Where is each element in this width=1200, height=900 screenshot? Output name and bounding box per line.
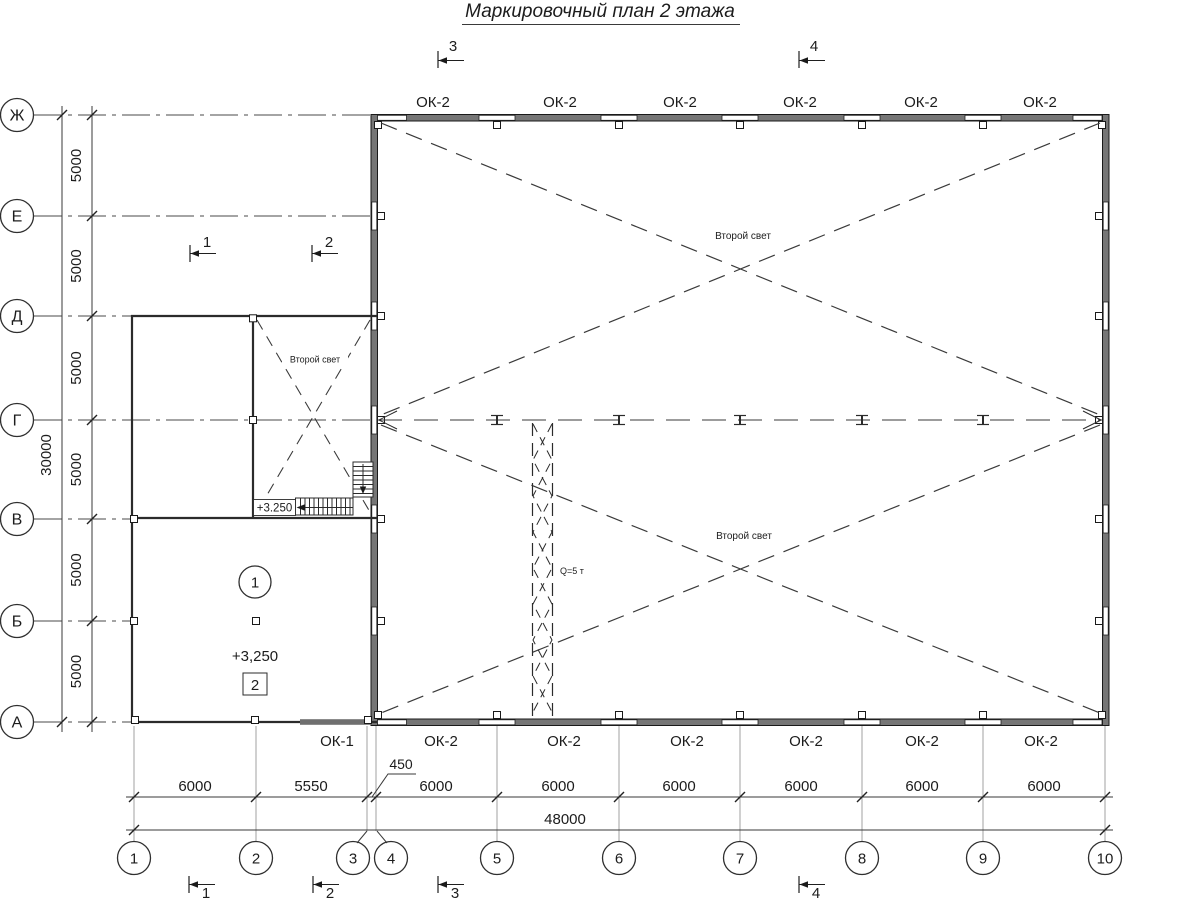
dim-text: 6000 bbox=[905, 778, 938, 795]
crane-capacity-label: Q=5 т bbox=[560, 566, 584, 576]
second-light-label: Второй свет bbox=[716, 531, 772, 542]
bottom-dimension-lines: 6000 5550 450 6000 6000 6000 6000 6000 6… bbox=[126, 756, 1113, 835]
left-dimension-lines: 5000 5000 5000 5000 5000 5000 30000 bbox=[38, 106, 97, 732]
axis-label: 8 bbox=[858, 851, 866, 868]
window-label: ОК-2 bbox=[1024, 733, 1058, 750]
axis-label: 3 bbox=[349, 851, 357, 868]
window-label: ОК-2 bbox=[905, 733, 939, 750]
window-label: ОК-1 bbox=[320, 733, 354, 750]
axis-label: 5 bbox=[493, 851, 501, 868]
section-arrow bbox=[314, 881, 323, 887]
section-arrow bbox=[313, 250, 322, 256]
section-number: 4 bbox=[810, 38, 818, 55]
section-marks: 3 4 1 2 1 2 3 4 bbox=[189, 38, 825, 900]
window-label: ОК-2 bbox=[670, 733, 704, 750]
dim-text: 6000 bbox=[419, 778, 452, 795]
dim-text: 5000 bbox=[68, 553, 85, 586]
axis-label: Г bbox=[13, 413, 22, 430]
axis-label: Ж bbox=[10, 108, 25, 125]
dim-total-text: 30000 bbox=[38, 434, 55, 476]
drawing-title: Маркировочный план 2 этажа bbox=[465, 1, 735, 22]
window-labels-bottom: ОК-1 ОК-2 ОК-2 ОК-2 ОК-2 ОК-2 ОК-2 bbox=[320, 733, 1058, 750]
axis-label: Е bbox=[12, 209, 23, 226]
plan-mark: 2 bbox=[251, 677, 259, 694]
void-cross-lower: Второй свет bbox=[381, 425, 1100, 713]
window-label: ОК-2 bbox=[543, 94, 577, 111]
axis-grid-lines bbox=[34, 115, 371, 722]
dim-text: 6000 bbox=[178, 778, 211, 795]
axis-label: В bbox=[12, 512, 23, 529]
second-light-label: Второй свет bbox=[290, 355, 340, 365]
dim-text: 5550 bbox=[294, 778, 327, 795]
dim-text: 6000 bbox=[662, 778, 695, 795]
second-light-label: Второй свет bbox=[715, 231, 771, 242]
window-label: ОК-2 bbox=[424, 733, 458, 750]
dim-text: 6000 bbox=[541, 778, 574, 795]
floor-elevation-label: +3,250 bbox=[232, 648, 278, 665]
stair-elevation-label: +3.250 bbox=[257, 503, 293, 515]
dim-text: 5000 bbox=[68, 149, 85, 182]
window-labels-top: ОК-2 ОК-2 ОК-2 ОК-2 ОК-2 ОК-2 bbox=[416, 94, 1057, 111]
bottom-extension-lines bbox=[134, 726, 1105, 842]
axis-label: 7 bbox=[736, 851, 744, 868]
section-number: 4 bbox=[812, 885, 820, 900]
section-number: 2 bbox=[326, 885, 334, 900]
window-label: ОК-2 bbox=[416, 94, 450, 111]
window-label: ОК-2 bbox=[904, 94, 938, 111]
section-arrow bbox=[800, 881, 809, 887]
axis-label: 2 bbox=[252, 851, 260, 868]
section-number: 1 bbox=[203, 234, 211, 251]
dim-text: 6000 bbox=[1027, 778, 1060, 795]
col-axis-bubbles: 1 2 3 4 5 6 7 8 9 10 bbox=[118, 831, 1122, 875]
section-number: 2 bbox=[325, 234, 333, 251]
section-arrow bbox=[439, 881, 448, 887]
axis-label: 4 bbox=[387, 851, 395, 868]
void-cross-upper: Второй свет bbox=[381, 123, 1100, 415]
dim-text: 5000 bbox=[68, 249, 85, 282]
dim-text: 5000 bbox=[68, 351, 85, 384]
section-arrow bbox=[191, 250, 200, 256]
dim-total-text: 48000 bbox=[544, 811, 586, 828]
axis-label: Б bbox=[12, 614, 23, 631]
window-band-ok1 bbox=[300, 719, 372, 725]
section-arrow bbox=[439, 57, 448, 63]
interior-column bbox=[253, 618, 260, 625]
room-marks: 1 +3,250 2 bbox=[232, 566, 278, 695]
crane-runway bbox=[378, 411, 1102, 429]
floor-plan-drawing: Маркировочный план 2 этажа Ж Е Д Г В Б А bbox=[0, 0, 1200, 900]
dim-text: 450 bbox=[389, 756, 413, 772]
section-arrow bbox=[800, 57, 809, 63]
axis-label: 9 bbox=[979, 851, 987, 868]
window-label: ОК-2 bbox=[789, 733, 823, 750]
row-axis-bubbles: Ж Е Д Г В Б А bbox=[1, 99, 34, 739]
window-label: ОК-2 bbox=[663, 94, 697, 111]
axis-label: 6 bbox=[615, 851, 623, 868]
dim-text: 6000 bbox=[784, 778, 817, 795]
window-label: ОК-2 bbox=[1023, 94, 1057, 111]
axis-label: А bbox=[12, 715, 23, 732]
room-number: 1 bbox=[251, 575, 259, 592]
dim-text: 5000 bbox=[68, 453, 85, 486]
window-label: ОК-2 bbox=[783, 94, 817, 111]
axis-label: 10 bbox=[1097, 851, 1114, 868]
dim-text: 5000 bbox=[68, 655, 85, 688]
crane-truss bbox=[533, 423, 553, 716]
section-number: 3 bbox=[451, 885, 459, 900]
axis-label: Д bbox=[12, 309, 23, 326]
section-number: 3 bbox=[449, 38, 457, 55]
section-number: 1 bbox=[202, 885, 210, 900]
axis-label: 1 bbox=[130, 851, 138, 868]
window-label: ОК-2 bbox=[547, 733, 581, 750]
section-arrow bbox=[190, 881, 199, 887]
